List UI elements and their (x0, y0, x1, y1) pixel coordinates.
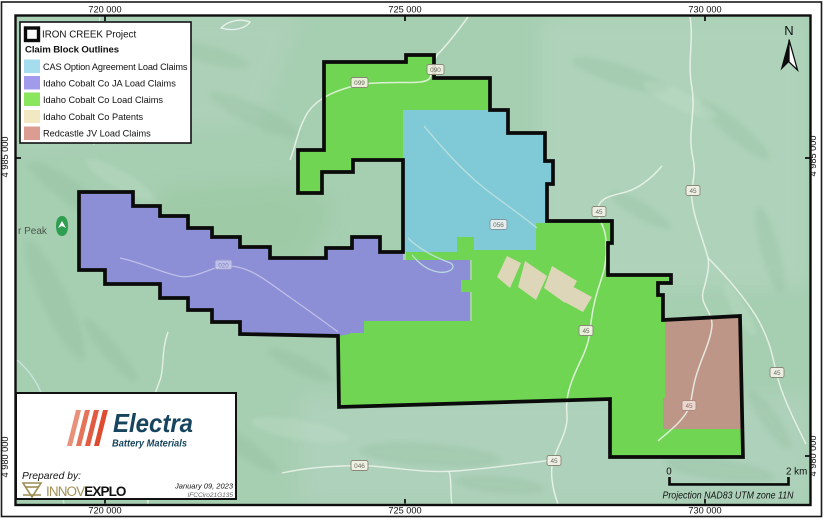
svg-text:4 985 000: 4 985 000 (808, 136, 818, 177)
svg-text:730 000: 730 000 (688, 506, 721, 516)
svg-text:046: 046 (354, 463, 365, 470)
svg-text:Projection NAD83 UTM zone 11N: Projection NAD83 UTM zone 11N (663, 491, 794, 502)
svg-text:720 000: 720 000 (88, 506, 121, 516)
svg-text:IFCCiro21G135: IFCCiro21G135 (187, 492, 233, 499)
svg-text:Redcastle JV Load Claims: Redcastle JV Load Claims (43, 129, 151, 139)
svg-text:45: 45 (685, 403, 693, 410)
svg-text:730 000: 730 000 (688, 5, 721, 15)
svg-text:N: N (784, 23, 793, 38)
svg-text:Prepared by:: Prepared by: (22, 471, 81, 482)
svg-text:Electra: Electra (113, 408, 193, 438)
svg-text:Idaho Cobalt Co JA Load Claims: Idaho Cobalt Co JA Load Claims (43, 79, 176, 89)
svg-text:090: 090 (430, 67, 441, 74)
svg-text:4 985 000: 4 985 000 (0, 137, 10, 178)
svg-text:099: 099 (354, 80, 365, 87)
svg-text:Idaho Cobalt Co Load Claims: Idaho Cobalt Co Load Claims (43, 95, 163, 105)
svg-text:4 980 000: 4 980 000 (808, 436, 818, 477)
svg-text:45: 45 (689, 188, 697, 195)
svg-text:Idaho Cobalt Co Patents: Idaho Cobalt Co Patents (43, 112, 144, 122)
svg-text:4 980 000: 4 980 000 (0, 437, 10, 478)
svg-text:INNOVEXPLO: INNOVEXPLO (46, 484, 126, 499)
svg-text:45: 45 (582, 328, 590, 335)
svg-text:020: 020 (218, 263, 229, 270)
svg-text:0: 0 (666, 467, 672, 478)
svg-text:Claim Block Outlines: Claim Block Outlines (25, 45, 119, 56)
svg-text:2 km: 2 km (786, 467, 807, 478)
svg-text:Battery Materials: Battery Materials (112, 439, 187, 450)
svg-text:r Peak: r Peak (18, 226, 48, 237)
svg-text:056: 056 (493, 222, 504, 229)
svg-text:January 09, 2023: January 09, 2023 (174, 482, 234, 491)
svg-text:45: 45 (773, 370, 781, 377)
svg-text:725 000: 725 000 (388, 5, 421, 15)
svg-text:45: 45 (595, 209, 603, 216)
svg-text:CAS Option Agreement Load Clai: CAS Option Agreement Load Claims (43, 62, 188, 72)
svg-text:45: 45 (550, 458, 558, 465)
svg-text:725 000: 725 000 (388, 506, 421, 516)
svg-text:720 000: 720 000 (88, 5, 121, 15)
svg-text:IRON CREEK Project: IRON CREEK Project (42, 30, 136, 41)
